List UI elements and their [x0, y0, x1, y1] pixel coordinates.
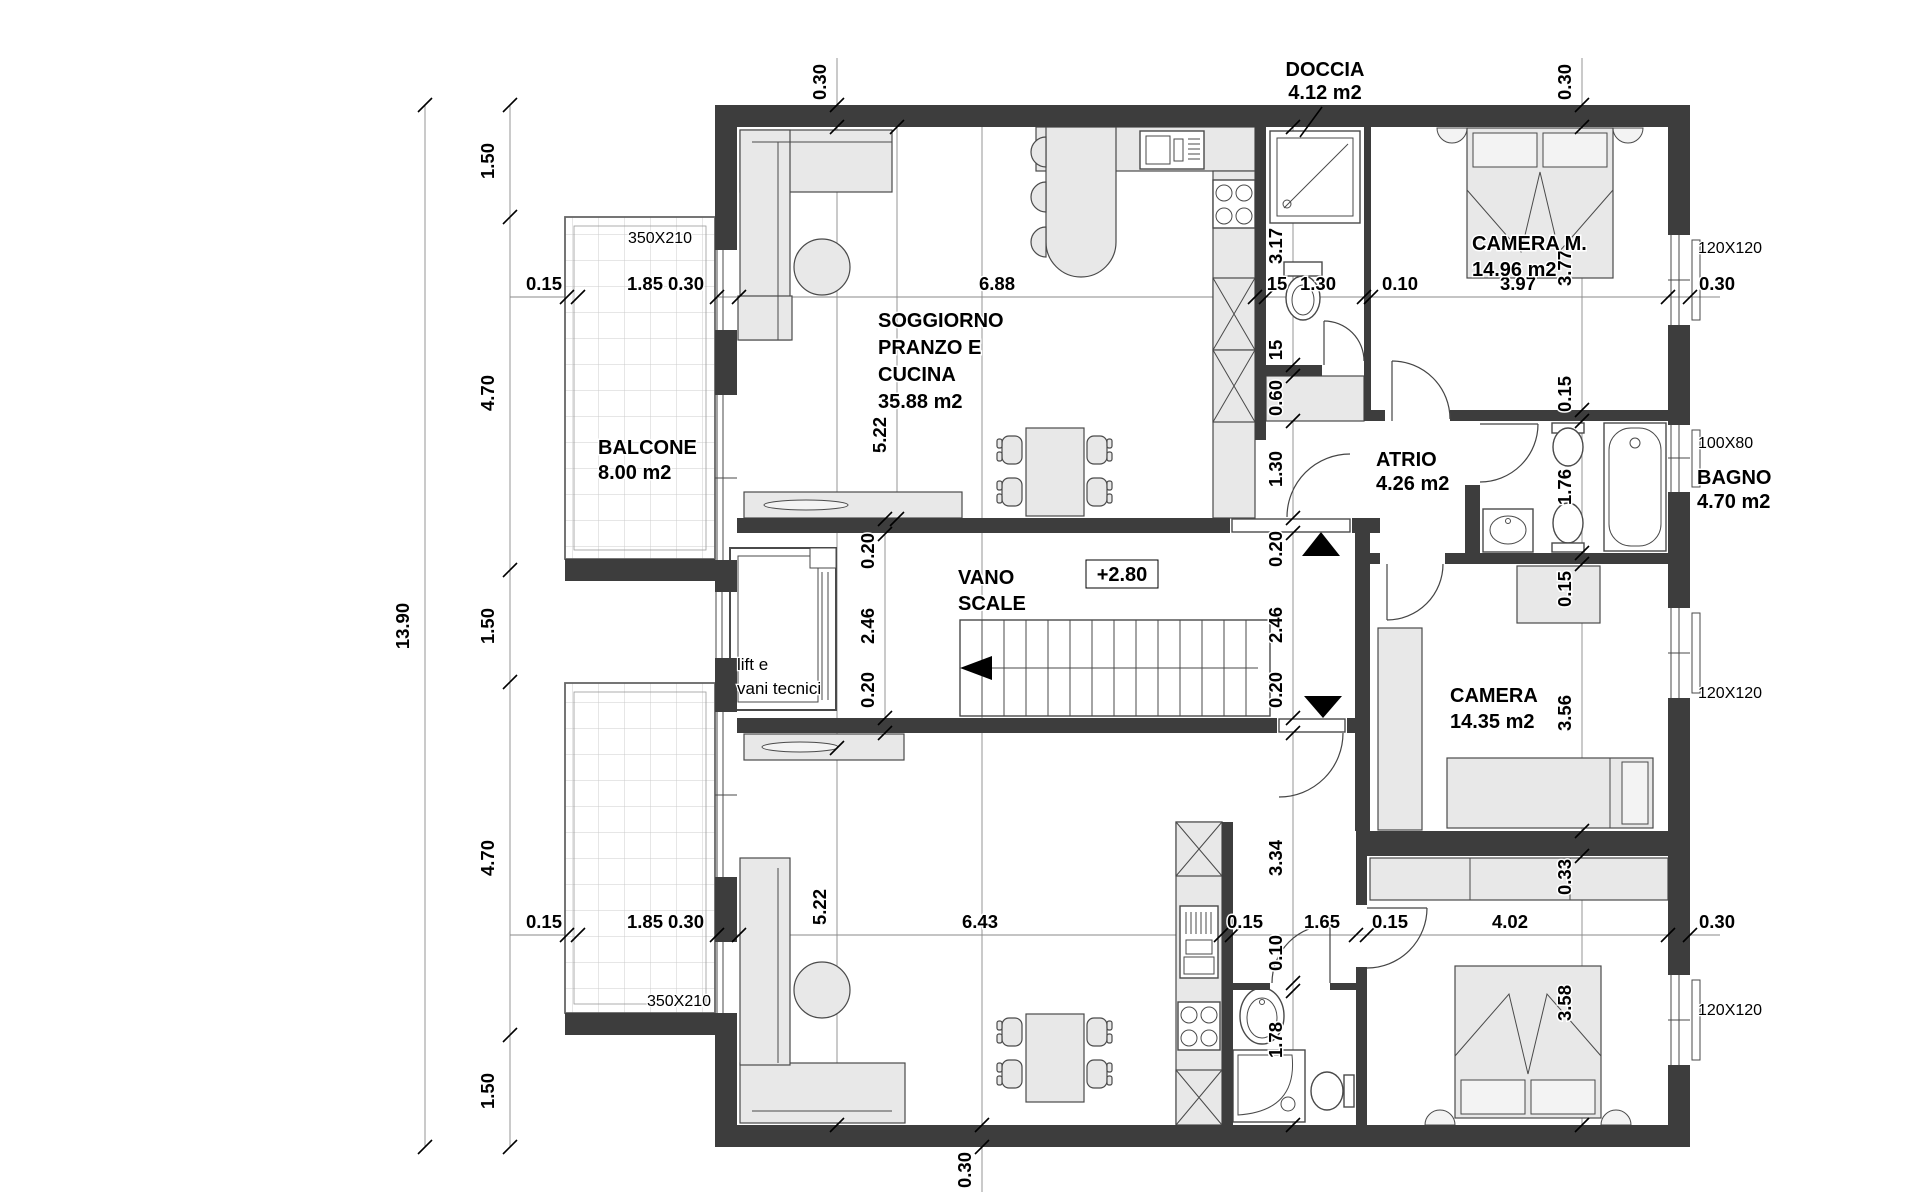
dining-set-upper	[997, 428, 1112, 516]
wall-corridor-bedroom	[1356, 856, 1367, 905]
pillow	[1473, 133, 1537, 167]
sofa-upper	[738, 130, 892, 340]
dining-table-upper	[1026, 428, 1084, 516]
sideboard-upper-tray	[764, 500, 848, 510]
door-camera	[1387, 564, 1443, 620]
bathtub	[1604, 423, 1666, 551]
dim-right-5: 0.33	[1554, 859, 1575, 895]
stair-hall	[730, 532, 1342, 718]
dim-center-4: 0.20	[1265, 531, 1286, 567]
pillow	[1622, 762, 1648, 824]
wall-atrio-bagno	[1465, 485, 1480, 553]
wall-exterior-right	[1668, 105, 1690, 235]
chair	[997, 436, 1022, 464]
dim-left-0: 1.50	[477, 143, 498, 179]
wall-exterior-right	[1668, 492, 1690, 608]
shower-room-lower	[1233, 988, 1354, 1122]
wall-exterior-left	[715, 105, 737, 250]
wall-exterior-left	[715, 330, 737, 395]
side-table-lower	[794, 962, 850, 1018]
dim-top-5: 1.30	[1300, 273, 1336, 294]
dim-bottom-4: 0.15	[1227, 911, 1263, 932]
chair	[1087, 478, 1112, 506]
chair	[997, 1060, 1022, 1088]
label-atrio: ATRIO	[1376, 449, 1437, 471]
dining-table-lower	[1026, 1014, 1084, 1102]
dim-bottom-0: 0.15	[526, 911, 562, 932]
sideboard-lower-tray	[762, 742, 838, 752]
label-camera-m-area: 14.96 m2	[1472, 259, 1557, 281]
dim-top-0: 0.15	[526, 273, 562, 294]
dim-bottom-7: 4.02	[1492, 911, 1528, 932]
dim-right-1: 0.15	[1554, 376, 1575, 412]
wall-camera-north	[1370, 553, 1380, 564]
nightstand	[1425, 1110, 1455, 1125]
bidet	[1553, 428, 1583, 466]
wardrobe-lower	[1370, 858, 1668, 900]
door-camera-m	[1392, 361, 1450, 421]
section-arrow-down-icon	[1304, 696, 1342, 718]
label-level-marker: +2.80	[1097, 564, 1148, 586]
window-living-lower	[717, 942, 723, 1013]
wall-bedroom-north	[1356, 831, 1690, 856]
dim-center-7: 3.34	[1265, 839, 1286, 876]
corner-shower-lower	[1233, 1050, 1305, 1122]
nightstand	[1613, 128, 1643, 143]
dining-set-lower	[997, 1014, 1112, 1102]
section-arrow-up-icon	[1302, 532, 1340, 556]
dim-top-3: 6.88	[979, 273, 1015, 294]
label-window-bedroom-lower: 120X120	[1698, 1002, 1762, 1019]
door-corridor-lower	[1279, 719, 1345, 797]
label-doccia-area: 4.12 m2	[1288, 82, 1361, 104]
sofa-lower-back	[740, 1063, 905, 1123]
wall-exterior-left	[715, 560, 737, 592]
window-lift	[716, 592, 722, 658]
wall-exterior-right	[1668, 1065, 1690, 1147]
label-lift-1: lift e	[737, 655, 768, 674]
wall-shower-north	[1232, 983, 1270, 990]
balcony-door-lower	[715, 712, 737, 877]
kitchen-lower	[1176, 822, 1222, 1125]
dim-soggiorno-depth-bottom: 5.22	[809, 889, 830, 925]
wall-shower-north	[1330, 983, 1356, 990]
dim-bottom-8: 0.30	[1699, 911, 1735, 932]
label-doccia: DOCCIA	[1286, 59, 1365, 81]
pillow	[1461, 1080, 1525, 1114]
window-camera	[1668, 608, 1700, 698]
dim-wall-top-right: 0.30	[1554, 64, 1575, 100]
label-soggiorno-1: SOGGIORNO	[878, 310, 1004, 332]
dim-soggiorno-depth-top: 5.22	[869, 417, 890, 453]
wall-corridor-bedroom	[1356, 967, 1367, 1125]
cooktop-lower	[1178, 1002, 1220, 1050]
dim-center-5: 2.46	[1265, 607, 1286, 643]
dim-overall-height: 13.90	[392, 603, 413, 649]
label-bagno: BAGNO	[1697, 467, 1771, 489]
label-soggiorno-3: CUCINA	[878, 364, 956, 386]
window-bedroom-lower	[1668, 975, 1700, 1065]
wall-camera-west	[1355, 518, 1370, 831]
dim-wall-top-left: 0.30	[809, 64, 830, 100]
label-atrio-area: 4.26 m2	[1376, 473, 1449, 495]
oven-lower	[1180, 906, 1218, 978]
dim-bottom-2: 0.30	[668, 911, 704, 932]
floor-plan-page: 13.90 1.50 4.70 1.50 4.70 1.50 0.15 1.85…	[0, 0, 1920, 1200]
balcony-door-upper	[715, 395, 737, 560]
dim-right-2: 1.76	[1554, 469, 1575, 505]
dim-bottom-3: 6.43	[962, 911, 998, 932]
label-vano-scale-1: VANO	[958, 567, 1014, 589]
chair	[997, 1018, 1022, 1046]
wall-vano-south	[737, 718, 1277, 733]
label-window-balcony-top: 350X210	[628, 230, 692, 247]
chair	[1087, 1018, 1112, 1046]
wc-lower	[1311, 1072, 1343, 1110]
dim-left-3: 4.70	[477, 840, 498, 876]
label-camera-area: 14.35 m2	[1450, 711, 1535, 733]
sideboard-upper	[744, 492, 962, 518]
window-bagno	[1668, 425, 1700, 492]
label-camera-m: CAMERA M.	[1472, 233, 1587, 255]
label-vano-scale-2: SCALE	[958, 593, 1026, 615]
dim-center-9: 1.78	[1265, 1022, 1286, 1058]
label-window-camera-m: 120X120	[1698, 240, 1762, 257]
label-camera: CAMERA	[1450, 685, 1538, 707]
dim-bottom-5: 1.65	[1304, 911, 1340, 932]
dim-bottom-1: 1.85	[627, 911, 663, 932]
pillow	[1543, 133, 1607, 167]
dim-right-3: 0.15	[1554, 571, 1575, 607]
sofa-lower-side	[740, 858, 790, 1065]
dim-right-0: 3.77	[1554, 250, 1575, 286]
wall-vano-south	[1347, 718, 1370, 733]
nightstand	[1437, 128, 1467, 143]
balcony-bottom-tiles	[565, 683, 715, 1013]
door-doccia	[1324, 321, 1364, 365]
dim-stair-2: 0.20	[857, 672, 878, 708]
chair	[1087, 1060, 1112, 1088]
dim-center-3: 1.30	[1265, 451, 1286, 487]
bedroom-lower-furniture	[1370, 858, 1668, 1125]
nightstand	[1601, 1110, 1631, 1125]
label-balcone: BALCONE	[598, 437, 697, 459]
wc-bagno	[1553, 503, 1583, 543]
dim-top-2: 0.30	[668, 273, 704, 294]
kitchen-upper-sink	[1140, 131, 1204, 169]
label-soggiorno-area: 35.88 m2	[878, 391, 963, 413]
wardrobe-camera	[1378, 628, 1422, 830]
dim-right-6: 3.58	[1554, 985, 1575, 1021]
dim-center-2: 0.60	[1265, 380, 1286, 416]
wall-kitchen-lower	[1222, 822, 1233, 1125]
wall-cameram-south	[1371, 410, 1385, 421]
label-lift-2: vani tecnici	[737, 679, 821, 698]
side-table-upper	[794, 239, 850, 295]
chair	[997, 478, 1022, 506]
dim-left-4: 1.50	[477, 1073, 498, 1109]
pillow	[1531, 1080, 1595, 1114]
label-window-balcony-bottom: 350X210	[647, 993, 711, 1010]
tall-cabinet-upper	[1213, 278, 1255, 422]
label-window-bagno: 100X80	[1698, 435, 1753, 452]
dim-center-8: 0.10	[1265, 935, 1286, 971]
cooktop-upper	[1213, 180, 1255, 228]
balcony-bottom	[565, 683, 715, 1013]
floor-plan-drawing: 13.90 1.50 4.70 1.50 4.70 1.50 0.15 1.85…	[0, 0, 1920, 1200]
wall-camera-north	[1445, 553, 1668, 564]
dim-wall-bottom: 0.30	[954, 1152, 975, 1188]
window-soggiorno	[717, 250, 723, 330]
chair	[1087, 436, 1112, 464]
dim-center-0: 3.17	[1265, 228, 1286, 264]
dim-center-6: 0.20	[1265, 672, 1286, 708]
wall-exterior-bottom	[715, 1125, 1690, 1147]
dim-stair-1: 2.46	[857, 608, 878, 644]
lift-shaft-notch	[810, 548, 836, 568]
balcony-top-tiles	[565, 217, 715, 559]
wc-bagno-tank	[1552, 543, 1584, 552]
window-camera-m	[1668, 235, 1700, 325]
label-balcone-area: 8.00 m2	[598, 462, 671, 484]
label-bagno-area: 4.70 m2	[1697, 491, 1770, 513]
label-soggiorno-2: PRANZO E	[878, 337, 981, 359]
wall-balcony-bottom-south	[565, 1013, 715, 1035]
dim-top-4: 15	[1267, 273, 1288, 294]
stool	[1031, 182, 1046, 212]
wall-soggiorno-vano	[737, 518, 1230, 533]
door-bagno	[1480, 424, 1538, 482]
dim-top-8: 0.30	[1699, 273, 1735, 294]
camera-m-furniture	[1437, 128, 1643, 278]
stool	[1031, 227, 1046, 257]
wall-exterior-left	[715, 1013, 737, 1147]
wc-lower-tank	[1344, 1075, 1354, 1107]
dim-bottom-6: 0.15	[1372, 911, 1408, 932]
label-window-camera: 120X120	[1698, 685, 1762, 702]
wall-exterior-left	[715, 877, 737, 942]
dim-left-1: 4.70	[477, 375, 498, 411]
wall-doccia-cameram	[1364, 127, 1371, 421]
wall-exterior-left	[715, 658, 737, 712]
dim-top-1: 1.85	[627, 273, 663, 294]
dim-left-2: 1.50	[477, 608, 498, 644]
dim-stair-0: 0.20	[857, 533, 878, 569]
wall-balcony-top-south	[565, 559, 715, 581]
dim-center-1: 15	[1265, 340, 1286, 361]
sofa-upper-chaise	[738, 296, 792, 340]
stool	[1031, 137, 1046, 167]
balcony-top	[565, 217, 715, 559]
wall-exterior-right	[1668, 325, 1690, 425]
kitchen-upper-peninsula	[1046, 127, 1116, 277]
dim-right-4: 3.56	[1554, 695, 1575, 731]
dim-top-6: 0.10	[1382, 273, 1418, 294]
wall-exterior-top	[715, 105, 1690, 127]
